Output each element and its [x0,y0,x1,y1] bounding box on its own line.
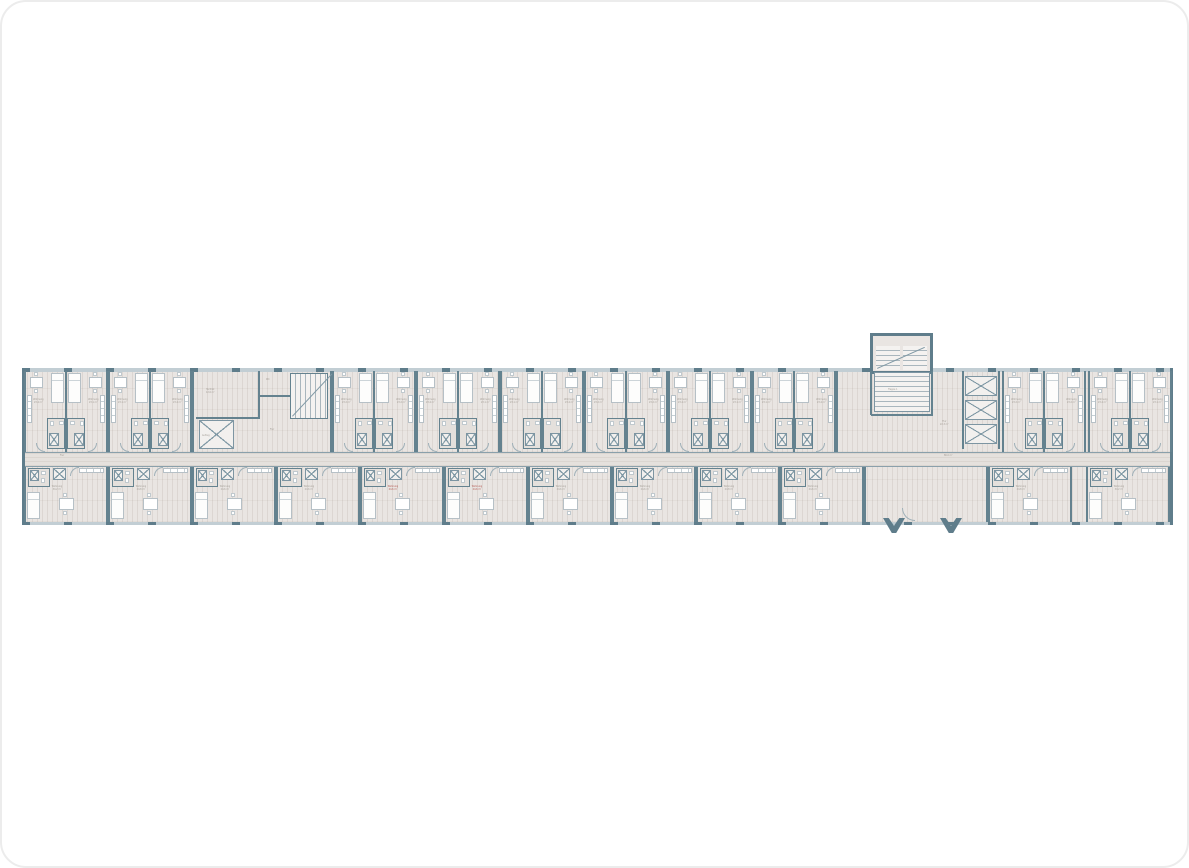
unit-module-south: Wohnung24.6 m² [528,467,612,522]
chair [485,372,489,376]
unit-label: Wohnung23.1 m² [84,398,103,404]
shaft-2 [965,400,997,420]
dining-table [674,377,687,388]
partition-wall [752,371,754,452]
kitchenette [331,468,356,473]
bed [628,373,641,403]
bathroom [775,418,793,449]
door-swing [172,443,181,452]
door-swing [826,467,835,476]
wall [986,467,988,522]
bed [531,492,544,519]
chair [118,389,122,393]
unit-label: Wohnung23.1 m² [476,398,495,404]
unit-label: Wohnung24.8 m² [1010,485,1032,491]
dining-table [1023,498,1038,510]
bed [363,492,376,519]
stairs-east [874,372,930,412]
bathroom [523,418,541,449]
toilet [1114,421,1118,426]
unit-module-north: Wohnung23.4 m² Wohnung23.1 m² [24,371,108,452]
chair [821,372,825,376]
chair [735,511,739,515]
dining-table [395,498,410,510]
dining-table [397,377,410,388]
dining-table [1094,377,1107,388]
door-swing [742,467,751,476]
chair [342,389,346,393]
elevator-label: Aufzug [202,434,210,437]
unit-label: Wohnung23.2 m² [589,398,608,404]
central-corridor [22,453,1173,466]
dining-table [649,377,662,388]
shower-tray [357,433,367,446]
unit-module-south: Wohnung24.8 m² [696,467,780,522]
chair [1125,493,1129,497]
unit-module-south: Wohnung24.8 m² [988,467,1072,522]
bed [443,373,456,403]
unit-label: Wohnung23.4 m² [673,398,692,404]
bathroom [67,418,85,449]
shower-tray [1113,433,1123,446]
chair [678,389,682,393]
chair [567,493,571,497]
unit-module-north: Wohnung23.4 m² Wohnung23.1 m² [1088,371,1172,452]
door-swing [1152,443,1161,452]
shower-tray [1092,470,1101,481]
door-swing [596,443,605,452]
toilet [1005,478,1009,483]
wall [330,371,332,452]
partition-wall [1170,371,1172,452]
closet [809,468,822,480]
shower-tray [994,470,1003,481]
unit-label: Wohnung23.2 m² [337,398,356,404]
door-swing [322,467,331,476]
door-swing [648,443,657,452]
unit-module-south: Wohnung24.6 m² [780,467,864,522]
sink [70,421,75,425]
partition-wall [360,467,362,522]
wall [196,417,260,419]
wall [870,371,872,415]
door-swing [490,467,499,476]
bathroom [131,418,149,449]
door-swing [406,467,415,476]
toilet [358,421,362,426]
bathroom [627,418,645,449]
shower-tray [618,470,627,481]
shaft-3 [965,424,997,444]
sink [545,471,550,475]
shower-tray [198,470,207,481]
shower-tray [133,433,143,446]
unit-label: Wohnung23.1 m² [113,398,132,404]
chair [147,511,151,515]
dining-table [733,377,746,388]
chair [231,511,235,515]
unit-label: Wohnung30.2 m² [1108,485,1130,491]
bed [796,373,809,403]
toilet [629,478,633,483]
wc-label: WC [266,378,270,381]
door-swing [816,443,825,452]
unit-label: Wohnung23.4 m² [29,398,48,404]
wall [931,371,933,415]
bed [699,492,712,519]
bed [712,373,725,403]
sink [209,471,214,475]
sink [41,471,46,475]
sink [125,471,130,475]
sink [59,421,64,425]
corridor-wall-north [22,452,1173,453]
door-swing [574,467,583,476]
sink [1123,421,1128,425]
bathroom [1131,418,1149,449]
bathroom [439,418,457,449]
sink [1048,421,1053,425]
chair [510,372,514,376]
chair [1012,389,1016,393]
dining-table [815,498,830,510]
bathroom [1111,418,1129,449]
unit-label: Wohnung24.6 m² [550,485,572,491]
chair [569,372,573,376]
bathroom [691,418,709,449]
bed [460,373,473,403]
unit-label: Wohnung24.8 m² [130,485,152,491]
shower-tray [634,433,644,446]
dining-table [59,498,74,510]
tech-room-label: Technik12.6 m² [206,388,215,394]
shower-tray [525,433,535,446]
unit-label: Wohnung23.2 m² [1062,398,1081,404]
partition-wall [108,371,110,452]
sink [630,421,635,425]
chair [735,493,739,497]
unit-module-south: Wohnung24.6 m² [612,467,696,522]
sink [703,421,708,425]
bathroom [711,418,729,449]
kitchenette [667,468,692,473]
dining-table [565,377,578,388]
bed [1132,373,1145,403]
chair [737,389,741,393]
chair [399,493,403,497]
dining-table [1008,377,1021,388]
chair [1012,372,1016,376]
shower-tray [802,433,812,446]
toilet [526,421,530,426]
partition-wall [1086,467,1088,522]
closet [137,468,150,480]
dining-table [563,498,578,510]
dining-table [422,377,435,388]
dining-table [817,377,830,388]
door-swing [88,443,97,452]
unit-module-south: Wohnung24.6 m² [276,467,360,522]
shower-tray [158,433,168,446]
bed [152,373,165,403]
partition-wall [668,371,670,452]
chair [1027,493,1031,497]
dining-table [143,498,158,510]
stair-tower [870,333,933,374]
chair [177,389,181,393]
sink [714,421,719,425]
kitchenette [79,468,104,473]
unit-module-north: Wohnung23.1 m² Wohnung23.4 m² [752,371,836,452]
toilet [1144,421,1148,426]
door-swing [564,443,573,452]
partition-wall [1070,467,1072,522]
chair [483,511,487,515]
sink [535,421,540,425]
closet [473,468,486,480]
sink [546,421,551,425]
bed [779,373,792,403]
partition-wall [1002,371,1004,452]
toilet [164,421,168,426]
chair [594,389,598,393]
toilet [377,478,381,483]
unit-module-south: Wohnung24.6 m² [192,467,276,522]
chair [34,372,38,376]
partition-wall [444,467,446,522]
toilet [556,421,560,426]
bed [544,373,557,403]
chair [819,493,823,497]
bathroom [375,418,393,449]
bed [68,373,81,403]
partition-wall [696,467,698,522]
unit-module-south: Wohnung30.2 m² [24,467,108,522]
shower-tray [49,433,59,446]
door-swing [658,467,667,476]
partition-wall [612,467,614,522]
shower-tray [777,433,787,446]
exterior-wall-south [22,522,1173,526]
bathroom [355,418,373,449]
page: Flur 86.0 m² Wohnung23.4 m² [0,0,1189,868]
toilet [808,421,812,426]
chair [819,511,823,515]
dining-table [89,377,102,388]
dining-table [1153,377,1166,388]
wall [836,371,838,452]
chair [231,493,235,497]
partition-wall [1168,467,1170,522]
dining-table [227,498,242,510]
bed [359,373,372,403]
chair [651,511,655,515]
partition-wall [988,467,990,522]
door-swing [396,443,405,452]
chair [1125,511,1129,515]
partition-wall [416,371,418,452]
shower-tray [550,433,560,446]
closet [389,468,402,480]
chair [177,372,181,376]
dining-table [173,377,186,388]
closet [221,468,234,480]
toilet [209,478,213,483]
unit-module-north: Wohnung23.1 m² Wohnung23.4 m² [500,371,584,452]
sink [1103,471,1108,475]
unit-label: Wohnung30.2 m² [46,485,68,491]
chair [1157,389,1161,393]
toilet [778,421,782,426]
partition-wall [584,371,586,452]
kitchenette [415,468,440,473]
shower-tray [1027,433,1037,446]
unit-module-north: Wohnung23.2 m² Wohnung23.2 m² [332,371,416,452]
door-swing [1100,443,1109,452]
unit-label: Wohnung24.6 m² [382,485,404,491]
toilet [640,421,644,426]
dining-table [311,498,326,510]
chair [737,372,741,376]
shower-tray [1052,433,1062,446]
stair-east-label: Treppe 1 [888,388,897,391]
door-swing [36,443,45,452]
unit-module-south: Wohnung24.6 m² [360,467,444,522]
partition-wall [1088,371,1090,452]
unit-label: Wohnung24.6 m² [214,485,236,491]
chair [63,511,67,515]
chair [315,493,319,497]
bathroom [607,418,625,449]
chair [762,372,766,376]
corridor-label-2: 86.0 m² [944,454,953,457]
chair [594,372,598,376]
wall [192,371,194,452]
bed [1046,373,1059,403]
chair [1098,372,1102,376]
bed [1089,492,1102,519]
shower-tray [718,433,728,446]
wall [998,371,1000,449]
shower-tray [382,433,392,446]
closet [305,468,318,480]
shower-tray [1138,433,1148,446]
shower-tray [366,470,375,481]
shower-tray [786,470,795,481]
chair [63,493,67,497]
partition-wall [24,371,26,452]
chair [34,389,38,393]
toilet [461,478,465,483]
chair [762,389,766,393]
bed [783,492,796,519]
toilet [1103,478,1107,483]
sink [377,471,382,475]
kitchenette [247,468,272,473]
unit-module-north: Wohnung23.4 m² Wohnung23.1 m² [668,371,752,452]
toilet [694,421,698,426]
chair [651,493,655,497]
kitchenette [1043,468,1068,473]
sink [797,471,802,475]
chair [567,511,571,515]
sink [154,421,159,425]
bathroom [543,418,561,449]
bed [447,492,460,519]
toilet [472,421,476,426]
shower-tray [74,433,84,446]
unit-label: Wohnung23.4 m² [421,398,440,404]
toilet [125,478,129,483]
sink [451,421,456,425]
east-hall-label: Flur22.3 m² [940,420,949,426]
toilet [388,421,392,426]
unit-label: Wohnung24.6 m² [802,485,824,491]
shower-tray [466,433,476,446]
unit-label: Wohnung23.1 m² [757,398,776,404]
dining-table [481,377,494,388]
shower-tray [114,470,123,481]
chair [510,389,514,393]
unit-label: Wohnung23.4 m² [168,398,187,404]
sink [629,471,634,475]
toilet [545,478,549,483]
door-swing [1014,443,1023,452]
chair [483,493,487,497]
closet [1017,468,1030,480]
unit-label: Wohnung23.4 m² [812,398,831,404]
chair [1157,372,1161,376]
sink [619,421,624,425]
dining-table [30,377,43,388]
dining-table [1121,498,1136,510]
chair [315,511,319,515]
bathroom [459,418,477,449]
dining-table [590,377,603,388]
dining-table [758,377,771,388]
sink [461,471,466,475]
partition-wall [1084,371,1086,452]
dining-table [1067,377,1080,388]
bed [279,492,292,519]
chair [678,372,682,376]
toilet [80,421,84,426]
unit-label: Wohnung24.6 m² [298,485,320,491]
door-swing [238,467,247,476]
chair [426,389,430,393]
chair [1071,389,1075,393]
bed [195,492,208,519]
door-swing [1132,467,1141,476]
partition-wall [192,467,194,522]
unit-module-north: Wohnung23.2 m² Wohnung23.2 m² [584,371,668,452]
stair-flight [903,346,927,370]
bed [27,492,40,519]
kitchenette [835,468,860,473]
toilet [134,421,138,426]
shower-tray [450,470,459,481]
bed [376,373,389,403]
sink [787,421,792,425]
chair [342,372,346,376]
bed [51,373,64,403]
door-swing [480,443,489,452]
toilet [293,478,297,483]
chair [399,511,403,515]
door-swing [732,443,741,452]
bed [991,492,1004,519]
partition-wall [108,467,110,522]
